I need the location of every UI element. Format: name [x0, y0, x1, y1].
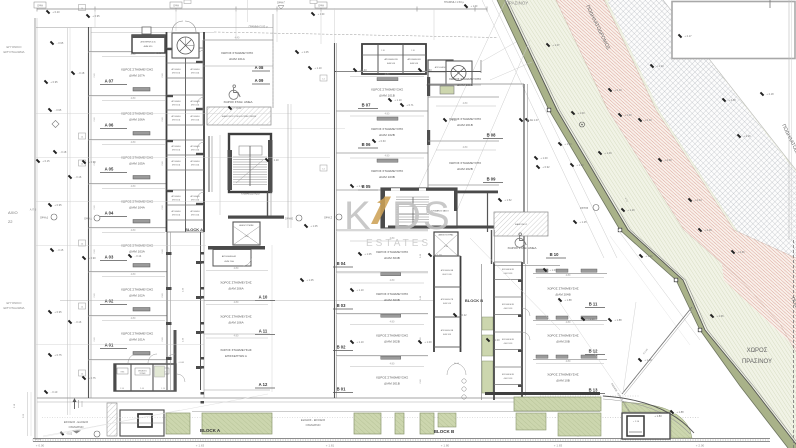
svg-text:4.80: 4.80 [131, 141, 136, 144]
svg-text:ΔΗΜ 301Α: ΔΗΜ 301Α [172, 72, 181, 75]
svg-text:ΧΩΡΟΣ ΣΤΑΘΜΕΥΣΗΣ: ΧΩΡΟΣ ΣΤΑΘΜΕΥΣΗΣ [371, 169, 403, 173]
svg-text:K: K [344, 194, 371, 238]
svg-text:ΑΠΟΘΗΚΗ Α1: ΑΠΟΘΗΚΗ Α1 [222, 255, 237, 258]
svg-text:ΕΙΣΟΔΟΣ - ΕΞΟΔΟΣ: ΕΙΣΟΔΟΣ - ΕΞΟΔΟΣ [64, 420, 89, 424]
svg-text:- 0.18: - 0.18 [60, 150, 67, 154]
svg-text:A 06: A 06 [105, 123, 114, 128]
svg-text:+ 1.25: + 1.25 [579, 220, 587, 224]
svg-text:ESTATES: ESTATES [366, 238, 431, 249]
svg-text:ΔΗΜ 301Α: ΔΗΜ 301Α [172, 199, 181, 202]
svg-text:ΟΨΗ: ΟΨΗ [173, 5, 179, 8]
svg-text:ΔΗΜ 103Β: ΔΗΜ 103Β [504, 342, 513, 345]
svg-text:+ 1.40: + 1.40 [449, 118, 457, 122]
svg-text:A 07: A 07 [105, 79, 114, 84]
svg-text:ΔΗΜ 20Α: ΔΗΜ 20Α [224, 260, 234, 263]
svg-text:ΧΩΡΟΣ ΣΤΑΘΜΕΥΣΗΣ: ΧΩΡΟΣ ΣΤΑΘΜΕΥΣΗΣ [371, 127, 403, 131]
svg-text:+ 1.88: + 1.88 [644, 358, 652, 362]
svg-text:B 01: B 01 [337, 387, 347, 392]
svg-text:ΔΙΑΜ 106Α: ΔΙΑΜ 106Α [228, 321, 243, 325]
svg-text:+ 2.16: + 2.16 [743, 134, 751, 138]
svg-text:+ 1.10: + 1.10 [434, 253, 442, 257]
svg-text:ΑΠΟΘΗΚΗ: ΑΠΟΘΗΚΗ [190, 195, 200, 198]
svg-text:A 04: A 04 [105, 211, 114, 216]
svg-text:ΠΙΕΣ: ΠΙΕΣ [121, 371, 125, 373]
svg-text:- 0.15: - 0.15 [57, 248, 64, 252]
svg-text:ΑΠΟΘΗΚΗ 8Β: ΑΠΟΘΗΚΗ 8Β [502, 338, 515, 341]
svg-text:+ 1.05: + 1.05 [364, 252, 372, 256]
svg-text:- 0.14: - 0.14 [135, 254, 142, 258]
svg-text:+ 0.75: + 0.75 [88, 376, 96, 380]
svg-text:+ 0.95: + 0.95 [54, 203, 62, 207]
svg-text:4.80: 4.80 [131, 185, 136, 188]
svg-text:B 13: B 13 [589, 388, 599, 393]
svg-text:+ 2.10: + 2.10 [644, 118, 652, 122]
svg-text:ΔΗΜ 50Β: ΔΗΜ 50Β [410, 62, 419, 65]
svg-text:ΔΗΜ 103Β: ΔΗΜ 103Β [504, 307, 513, 310]
svg-text:BLOCK B: BLOCK B [465, 298, 483, 303]
svg-text:ΔΙΑΜ 202Β: ΔΙΑΜ 202Β [457, 167, 473, 171]
svg-text:4.80: 4.80 [385, 73, 390, 76]
svg-text:4.80: 4.80 [463, 146, 468, 149]
svg-text:+ 1.00: + 1.00 [587, 317, 595, 321]
svg-text:A 02: A 02 [105, 299, 114, 304]
svg-text:S: S [423, 194, 450, 238]
svg-text:+ 2.40: + 2.40 [664, 158, 672, 162]
svg-text:+ 1.10: + 1.10 [356, 288, 364, 292]
svg-text:ΔΙΑΜ 201Β: ΔΙΑΜ 201Β [457, 123, 473, 127]
svg-text:A 01: A 01 [105, 343, 114, 348]
svg-text:ΧΩΡΟΣ ΣΤΑΘ. ΑΜΕΑ: ΧΩΡΟΣ ΣΤΑΘ. ΑΜΕΑ [223, 100, 252, 104]
svg-text:ΧΩΡΟΣ ΣΤΑΘΜΕΥΣΗΣ: ΧΩΡΟΣ ΣΤΑΘΜΕΥΣΗΣ [371, 88, 403, 92]
svg-text:ΧΩΡΟΣ ΣΤΑΘΜΕΥΣΗΣ: ΧΩΡΟΣ ΣΤΑΘΜΕΥΣΗΣ [449, 77, 481, 81]
svg-text:+ 1.23: + 1.23 [564, 142, 572, 146]
svg-text:ΔΗΜ 50Β: ΔΗΜ 50Β [387, 62, 396, 65]
svg-text:+ 1.88: + 1.88 [564, 298, 572, 302]
svg-text:A 03: A 03 [105, 255, 114, 260]
svg-text:BLOCK A: BLOCK A [185, 227, 203, 232]
svg-text:ΧΩΡΟΣ ΣΤΑΘΜΕΥΣΗΣ: ΧΩΡΟΣ ΣΤΑΘΜΕΥΣΗΣ [449, 161, 481, 165]
svg-text:ΟΧΗΜΑΤΩΝ: ΟΧΗΜΑΤΩΝ [306, 423, 321, 427]
svg-text:+ 0.95: + 0.95 [92, 14, 100, 18]
svg-text:ΟΨΗ Δ: ΟΨΗ Δ [40, 217, 48, 220]
svg-text:ΑΠΟΘΗΚΗ: ΑΠΟΘΗΚΗ [190, 68, 200, 71]
svg-text:ΓΡΑΜΜΗ 1.50 μ: ΓΡΑΜΜΗ 1.50 μ [444, 0, 465, 4]
svg-text:4.80: 4.80 [234, 301, 239, 304]
svg-text:ΧΩΡΟΣ ΣΤΑΘΜΕΥΣΗΣ: ΧΩΡΟΣ ΣΤΑΘΜΕΥΣΗΣ [547, 334, 579, 338]
svg-text:ΔΗΜ 104Α: ΔΗΜ 104Α [191, 199, 200, 202]
svg-text:ΕΞΟΔΟΣ - ΕΙΣΟΔΟΣ: ΕΞΟΔΟΣ - ΕΙΣΟΔΟΣ [301, 418, 326, 422]
svg-text:+ 1.80: + 1.80 [441, 444, 450, 448]
svg-text:+ 0.15: + 0.15 [42, 159, 50, 163]
svg-text:ΑΠΟΘΗΚΗ: ΑΠΟΘΗΚΗ [190, 115, 200, 118]
svg-text:BLOCK B: BLOCK B [434, 429, 455, 434]
svg-text:ΑΛ Κ: ΑΛ Κ [35, 437, 42, 441]
svg-text:B 12: B 12 [589, 349, 599, 354]
svg-text:+ 0.20: + 0.20 [52, 10, 60, 14]
svg-text:- 0.10: - 0.10 [51, 390, 58, 394]
svg-text:4.80: 4.80 [385, 155, 390, 158]
svg-text:4.80: 4.80 [234, 267, 239, 270]
svg-text:+ 2.13: + 2.13 [656, 64, 664, 68]
svg-text:ΔΗΜ 104Α: ΔΗΜ 104Α [191, 164, 200, 167]
svg-text:ΑΠΟΘΗΚΗ 4Β: ΑΠΟΘΗΚΗ 4Β [407, 58, 421, 61]
svg-text:ΔΗΜ 301Α: ΔΗΜ 301Α [172, 149, 181, 152]
svg-text:+ 1.40: + 1.40 [525, 118, 533, 122]
svg-text:4.80: 4.80 [566, 321, 571, 324]
svg-text:ΔΗΜ 301Α: ΔΗΜ 301Α [172, 164, 181, 167]
svg-text:+ 0.43: + 0.43 [359, 68, 367, 72]
svg-text:+ 1.00: + 1.00 [577, 111, 585, 115]
svg-text:+ 2.18: + 2.18 [704, 228, 712, 232]
svg-text:4.80: 4.80 [463, 102, 468, 105]
svg-text:ΔΗΜ 104Α: ΔΗΜ 104Α [191, 149, 200, 152]
svg-text:ΑΠΟΘΗΚΗ 8Β: ΑΠΟΘΗΚΗ 8Β [502, 303, 515, 306]
svg-text:+ 1.88: + 1.88 [614, 318, 622, 322]
svg-text:ΔΙΑΜ 103Β: ΔΙΑΜ 103Β [379, 175, 395, 179]
svg-text:+ 1.81: + 1.81 [326, 444, 335, 448]
svg-text:ΟΨΗ Γ: ΟΨΗ Γ [277, 1, 286, 5]
svg-text:ΧΩΡΟΣ: ΧΩΡΟΣ [747, 348, 768, 354]
svg-text:ΧΩΡΟΣ ΣΤΑΘΜΕΥΣΗΣ: ΧΩΡΟΣ ΣΤΑΘΜΕΥΣΗΣ [121, 68, 153, 72]
svg-text:+ 1.07: + 1.07 [552, 43, 560, 47]
svg-text:ΑΠΟΘΗΚΗ 8Β: ΑΠΟΘΗΚΗ 8Β [502, 373, 515, 376]
svg-text:ΑΠΟΘΗΚΗ (Σ3): ΑΠΟΘΗΚΗ (Σ3) [141, 41, 156, 44]
svg-text:ΧΩΡΟΣ ΣΤΑΘΜΕΥΣΗΣ: ΧΩΡΟΣ ΣΤΑΘΜΕΥΣΗΣ [547, 287, 579, 291]
svg-text:ΔΙΑΜ 206Α: ΔΙΑΜ 206Α [228, 287, 243, 291]
svg-text:4.80: 4.80 [131, 317, 136, 320]
svg-text:ΟΨΗ Ζ: ΟΨΗ Ζ [324, 217, 333, 220]
svg-text:ΟΨΗ Β: ΟΨΗ Β [580, 207, 589, 210]
svg-text:+ 1.20: + 1.20 [627, 208, 635, 212]
svg-text:+ 0.63: + 0.63 [378, 139, 386, 143]
svg-text:ΑΠΟΘΗΚΗ 7Β: ΑΠΟΘΗΚΗ 7Β [441, 298, 454, 301]
svg-text:ΓΡΑΜΜΗ 3.00 μ: ΓΡΑΜΜΗ 3.00 μ [249, 25, 268, 29]
svg-text:ΑΠΟΘΗΚΗ: ΑΠΟΘΗΚΗ [171, 100, 181, 103]
svg-text:ΧΩΡΟΣ ΣΤΑΘΜΕΥΣΗΣ: ΧΩΡΟΣ ΣΤΑΘΜΕΥΣΗΣ [376, 334, 408, 338]
svg-text:- 0.13: - 0.13 [235, 106, 242, 110]
svg-text:ΔΗΜ 104Α: ΔΗΜ 104Α [191, 119, 200, 122]
svg-text:ΕΡΓΟΤΑΞΙΩΜΑ: ΕΡΓΟΤΑΞΙΩΜΑ [3, 50, 24, 54]
svg-text:ΔΗΜ 104Α: ΔΗΜ 104Α [191, 72, 200, 75]
svg-text:1.30: 1.30 [411, 50, 415, 52]
svg-text:4.80: 4.80 [131, 273, 136, 276]
svg-text:ΧΩΡΟΣ ΣΤΑΘΜΕΥΣΗΣ: ΧΩΡΟΣ ΣΤΑΘΜΕΥΣΗΣ [220, 315, 252, 319]
svg-text:+ 1.63: + 1.63 [196, 444, 205, 448]
svg-text:ΑΠΟΘΗΚΗ: ΑΠΟΘΗΚΗ [190, 210, 200, 213]
svg-text:+ 1.10: + 1.10 [356, 340, 364, 344]
svg-text:B 11: B 11 [589, 302, 598, 307]
svg-text:ΑΠΟΘΗΚΗ: ΑΠΟΘΗΚΗ [190, 100, 200, 103]
svg-text:ΟΧΗΜΑΤΩΝ: ΟΧΗΜΑΤΩΝ [69, 425, 84, 429]
svg-text:ΔΙΑΜ 102Β: ΔΙΑΜ 102Β [379, 133, 395, 137]
svg-text:Α.Π 6: Α.Π 6 [30, 208, 37, 212]
svg-text:+ 2.10: + 2.10 [614, 88, 622, 92]
svg-text:ΑΠΟΘΗΚΗ: ΑΠΟΘΗΚΗ [190, 160, 200, 163]
svg-text:ΔΙΑΜ 101Β: ΔΙΑΜ 101Β [379, 94, 395, 98]
svg-text:ΔΙΑΜ 104Α: ΔΙΑΜ 104Α [129, 206, 146, 210]
svg-text:ΔΗΜ 104Α: ΔΗΜ 104Α [191, 214, 200, 217]
svg-text:ΠΡΑΣΙΝΟΥ: ΠΡΑΣΙΝΟΥ [506, 1, 529, 6]
svg-text:A 05: A 05 [105, 167, 114, 172]
svg-text:ΔΙΑΜ 10Β: ΔΙΑΜ 10Β [556, 379, 570, 383]
svg-text:ΔΙΑΜ 101Α: ΔΙΑΜ 101Α [129, 338, 146, 342]
svg-text:4.80: 4.80 [131, 229, 136, 232]
svg-text:+ 1.00: + 1.00 [624, 113, 632, 117]
svg-text:+ 2.44: + 2.44 [694, 198, 702, 202]
svg-text:+ 0.00: + 0.00 [36, 444, 45, 448]
svg-text:4.80: 4.80 [131, 97, 136, 100]
svg-text:- 0.16: - 0.16 [75, 175, 82, 179]
svg-text:+ 2.17: + 2.17 [684, 34, 692, 38]
svg-text:ΧΩΡΟΣ ΣΤΑΘΜΕΥΣΗΣ: ΧΩΡΟΣ ΣΤΑΘΜΕΥΣΗΣ [221, 51, 253, 55]
svg-text:ΑΧΙΟ: ΑΧΙΟ [8, 210, 18, 215]
svg-text:4.80: 4.80 [385, 113, 390, 116]
svg-text:ΔΙΑΜ 103Α: ΔΙΑΜ 103Α [129, 250, 146, 254]
svg-text:ΔΗΜ 103Β: ΔΗΜ 103Β [504, 272, 513, 275]
svg-text:+ 1.83: + 1.83 [554, 444, 563, 448]
svg-text:ΑΠΟΘΗΚΗ: ΑΠΟΘΗΚΗ [190, 145, 200, 148]
svg-text:ΑΠΟΘΗΚΗ 9Β: ΑΠΟΘΗΚΗ 9Β [441, 329, 454, 332]
svg-text:ΔΗΜ 420: ΔΗΜ 420 [144, 45, 154, 48]
svg-text:- 0.95: - 0.95 [55, 108, 62, 112]
svg-text:ΔΙΑΜ 107Α: ΔΙΑΜ 107Α [129, 74, 146, 78]
svg-text:D: D [392, 194, 421, 238]
svg-text:ΑΠΟΘΗΚΗ: ΑΠΟΘΗΚΗ [435, 66, 446, 69]
svg-text:ΕΓΓΟΝΙΚΟ: ΕΓΓΟΝΙΚΟ [7, 301, 23, 305]
svg-text:ΕΓΓΟΝΙΚΟ: ΕΓΓΟΝΙΚΟ [7, 45, 23, 49]
svg-text:ΔΙΑΜ 101Α: ΔΙΑΜ 101Α [229, 57, 246, 61]
svg-text:ΔΗΜ 104Α: ΔΗΜ 104Α [191, 104, 200, 107]
svg-text:4.80: 4.80 [566, 360, 571, 363]
svg-text:ΔΙΑΜ 106Α: ΔΙΑΜ 106Α [129, 118, 146, 122]
svg-text:+ 1.00: + 1.00 [540, 156, 548, 160]
svg-text:B 03: B 03 [337, 303, 347, 308]
svg-text:+ 1.00: + 1.00 [424, 340, 432, 344]
svg-text:+ 1.03: + 1.03 [549, 268, 557, 272]
svg-text:ΧΩΡΟΣ ΣΤΑΘΜΕΥΣΗΣ: ΧΩΡΟΣ ΣΤΑΘΜΕΥΣΗΣ [220, 348, 252, 352]
svg-text:+ 1.46: + 1.46 [645, 254, 653, 258]
svg-text:+ 1.52: + 1.52 [504, 198, 512, 202]
svg-text:22: 22 [8, 219, 13, 224]
svg-text:ΔΙΑΜ 301Β: ΔΙΑΜ 301Β [384, 382, 400, 386]
svg-text:ΟΨΗ Ε: ΟΨΗ Ε [285, 218, 294, 221]
svg-text:B 10: B 10 [550, 252, 560, 257]
svg-text:ΕΡΓΟΤΑΞΙΩΜΑ: ΕΡΓΟΤΑΞΙΩΜΑ [3, 306, 24, 310]
svg-text:+ 1.00: + 1.00 [492, 338, 500, 342]
svg-text:+ 1.10: + 1.10 [314, 66, 322, 70]
svg-text:+ 2.36: + 2.36 [716, 314, 724, 318]
svg-text:ΔΗΜ 103Β: ΔΗΜ 103Β [504, 377, 513, 380]
svg-text:ΔΙΑΜ 102Α: ΔΙΑΜ 102Α [129, 294, 146, 298]
svg-text:+ 1.00: + 1.00 [604, 151, 612, 155]
svg-text:ΑΠΟΘΗΚΗ: ΑΠΟΘΗΚΗ [171, 160, 181, 163]
svg-text:+ 1.00: + 1.00 [576, 163, 584, 167]
svg-text:+ 1.88: + 1.88 [676, 410, 684, 414]
svg-text:+ 0.63: + 0.63 [424, 68, 432, 72]
svg-text:ΧΩΡΟΣ ΣΤΑΘΜΕΥΣΗΣ: ΧΩΡΟΣ ΣΤΑΘΜΕΥΣΗΣ [376, 376, 408, 380]
svg-text:- 0.18: - 0.18 [78, 71, 85, 75]
svg-text:4.40: 4.40 [235, 37, 240, 40]
svg-text:ΑΝΕΛΚΥΣΤΗΡΑΣ: ΑΝΕΛΚΥΣΤΗΡΑΣ [239, 224, 254, 227]
svg-text:4.80: 4.80 [234, 335, 239, 338]
svg-text:B 02: B 02 [337, 345, 347, 350]
svg-text:+ 1.00: + 1.00 [471, 5, 478, 8]
svg-text:4.80: 4.80 [390, 321, 395, 324]
svg-text:+ 1.10: + 1.10 [356, 184, 364, 188]
svg-text:ΔΗΜ 30Β: ΔΗΜ 30Β [443, 333, 452, 336]
svg-text:+ 1.05: + 1.05 [306, 278, 314, 282]
svg-text:ΑΠΟΘΗΚΗ 6Β: ΑΠΟΘΗΚΗ 6Β [441, 269, 454, 272]
svg-text:- 0.16: - 0.16 [75, 320, 82, 324]
svg-text:ΠΡΑΣΙΝΟΥ: ΠΡΑΣΙΝΟΥ [742, 359, 772, 365]
svg-text:+ 1.83: + 1.83 [654, 414, 662, 418]
svg-text:ΑΠΟΘΗΚΗ: ΑΠΟΘΗΚΗ [171, 210, 181, 213]
svg-text:ΔΙΑΜ 302Β: ΔΙΑΜ 302Β [384, 340, 400, 344]
svg-text:ΔΙΑΜ 303Β: ΔΙΑΜ 303Β [384, 298, 400, 302]
svg-text:- 0.08: - 0.08 [178, 362, 184, 364]
svg-text:ΟΨΗ: ΟΨΗ [37, 5, 43, 8]
svg-text:+ 0.71: + 0.71 [406, 103, 414, 107]
svg-text:ΔΙΑΜ 105Α: ΔΙΑΜ 105Α [129, 162, 146, 166]
svg-text:A 11: A 11 [259, 329, 268, 334]
svg-text:ΕΠΙΣΚΕΠΤΩΝ Α: ΕΠΙΣΚΕΠΤΩΝ Α [225, 354, 247, 358]
svg-text:+ 1.10: + 1.10 [633, 421, 640, 423]
svg-text:4.80: 4.80 [390, 279, 395, 282]
svg-text:A 10: A 10 [259, 295, 268, 300]
svg-text:+ 0.92: + 0.92 [542, 165, 550, 169]
svg-text:+ 1.05: + 1.05 [310, 224, 318, 228]
svg-text:ΔΗΜ 100Β: ΔΗΜ 100Β [442, 273, 452, 276]
svg-text:ΚΛΙΜΑΚΟΣΤΑΣΙΟ: ΚΛΙΜΑΚΟΣΤΑΣΙΟ [241, 193, 260, 196]
svg-text:ΔΗΜ 301Α: ΔΗΜ 301Α [172, 214, 181, 217]
svg-text:B 09: B 09 [487, 177, 497, 182]
svg-text:ΔΙΑΜ 101Β: ΔΙΑΜ 101Β [457, 83, 473, 87]
svg-text:+ 1.10: + 1.10 [271, 158, 279, 162]
svg-text:- 0.95: - 0.95 [57, 41, 64, 45]
svg-text:B 04: B 04 [337, 261, 347, 266]
svg-text:+ 1.05: + 1.05 [301, 50, 309, 54]
svg-text:ΑΠΟΘΗΚΗ 3Β: ΑΠΟΘΗΚΗ 3Β [384, 58, 398, 61]
svg-text:ΧΩΡΟΣ ΣΤΑΘΜΕΥΣΗΣ: ΧΩΡΟΣ ΣΤΑΘΜΕΥΣΗΣ [376, 292, 408, 296]
svg-text:+ 1.10: + 1.10 [394, 98, 402, 102]
svg-text:+ 2.00: + 2.00 [696, 444, 705, 448]
svg-text:A 09: A 09 [255, 78, 264, 83]
svg-text:ΔΗΜ 301Α: ΔΗΜ 301Α [172, 104, 181, 107]
svg-text:+ 1.05: + 1.05 [155, 52, 162, 55]
svg-text:ΑΠΟΘΗΚΗ: ΑΠΟΘΗΚΗ [171, 115, 181, 118]
svg-text:- 0.02: - 0.02 [66, 433, 73, 436]
svg-text:ΟΨΗ: ΟΨΗ [318, 5, 324, 8]
svg-text:ΔΙΑΔΡΟΜΟΣ ΚΥΚΛΟΦΟΡΙΑΣ ΠΕΖΩΝ: ΔΙΑΔΡΟΜΟΣ ΚΥΚΛΟΦΟΡΙΑΣ ΠΕΖΩΝ [222, 115, 257, 118]
svg-text:+ 0.90: + 0.90 [88, 256, 96, 260]
svg-text:BLOCK A: BLOCK A [200, 428, 221, 433]
svg-text:+ 0.95: + 0.95 [54, 310, 62, 314]
svg-text:ΔΙΑΜ 304Β: ΔΙΑΜ 304Β [384, 256, 400, 260]
svg-text:ΧΩΡΟΣ ΣΤΑΘΜΕΥΣΗΣ: ΧΩΡΟΣ ΣΤΑΘΜΕΥΣΗΣ [547, 373, 579, 377]
svg-text:ΔΗΜ 301Α: ΔΗΜ 301Α [172, 119, 181, 122]
svg-text:+ 1.00: + 1.00 [318, 13, 325, 16]
svg-text:ΔΙΑΜ 20Β: ΔΙΑΜ 20Β [556, 340, 570, 344]
svg-text:B 07: B 07 [362, 103, 372, 108]
svg-text:B 08: B 08 [487, 133, 497, 138]
svg-text:+ 2.46: + 2.46 [737, 250, 745, 254]
svg-text:+ 2.18: + 2.18 [766, 92, 774, 96]
svg-text:B 06: B 06 [362, 142, 372, 147]
svg-text:ΑΠΟΘΗΚΗ: ΑΠΟΘΗΚΗ [171, 195, 181, 198]
svg-text:ΔΙΑΔΡΟΜΟΣ: ΔΙΑΔΡΟΜΟΣ [515, 223, 528, 226]
svg-text:ΧΩΡΟΣ ΣΤΑΘΜΕΥΣΗΣ: ΧΩΡΟΣ ΣΤΑΘΜΕΥΣΗΣ [121, 288, 153, 292]
svg-text:ΑΠΟΘΗΚΗ: ΑΠΟΘΗΚΗ [171, 145, 181, 148]
svg-text:1.30: 1.30 [381, 50, 385, 52]
svg-text:A 12: A 12 [259, 382, 268, 387]
svg-text:ΧΩΡΟΣ ΣΤΑΘΜΕΥΣΗΣ: ΧΩΡΟΣ ΣΤΑΘΜΕΥΣΗΣ [376, 250, 408, 254]
svg-text:+ 0.22: + 0.22 [459, 313, 467, 317]
svg-text:ΔΙΑΜ 204Β: ΔΙΑΜ 204Β [555, 293, 570, 297]
svg-text:ΧΩΡΟΣ ΣΤΑΘΜΕΥΣΗΣ: ΧΩΡΟΣ ΣΤΑΘΜΕΥΣΗΣ [121, 332, 153, 336]
svg-text:ΑΠΟΘΗΚΗ 8Β: ΑΠΟΘΗΚΗ 8Β [502, 268, 515, 271]
svg-text:+ 2.48: + 2.48 [728, 98, 736, 102]
svg-text:+ 0.95: + 0.95 [50, 80, 58, 84]
svg-text:+ 0.75: + 0.75 [54, 353, 62, 357]
svg-text:4.80: 4.80 [390, 363, 395, 366]
svg-text:ΧΩΡΟΣ ΣΤΑΘΜΕΥΣΗΣ: ΧΩΡΟΣ ΣΤΑΘΜΕΥΣΗΣ [220, 281, 252, 285]
svg-text:ΔΗΜ 50Β: ΔΗΜ 50Β [443, 302, 452, 305]
svg-text:ΑΠΟΘΗΚΗ: ΑΠΟΘΗΚΗ [171, 68, 181, 71]
svg-text:4.80: 4.80 [566, 274, 571, 277]
